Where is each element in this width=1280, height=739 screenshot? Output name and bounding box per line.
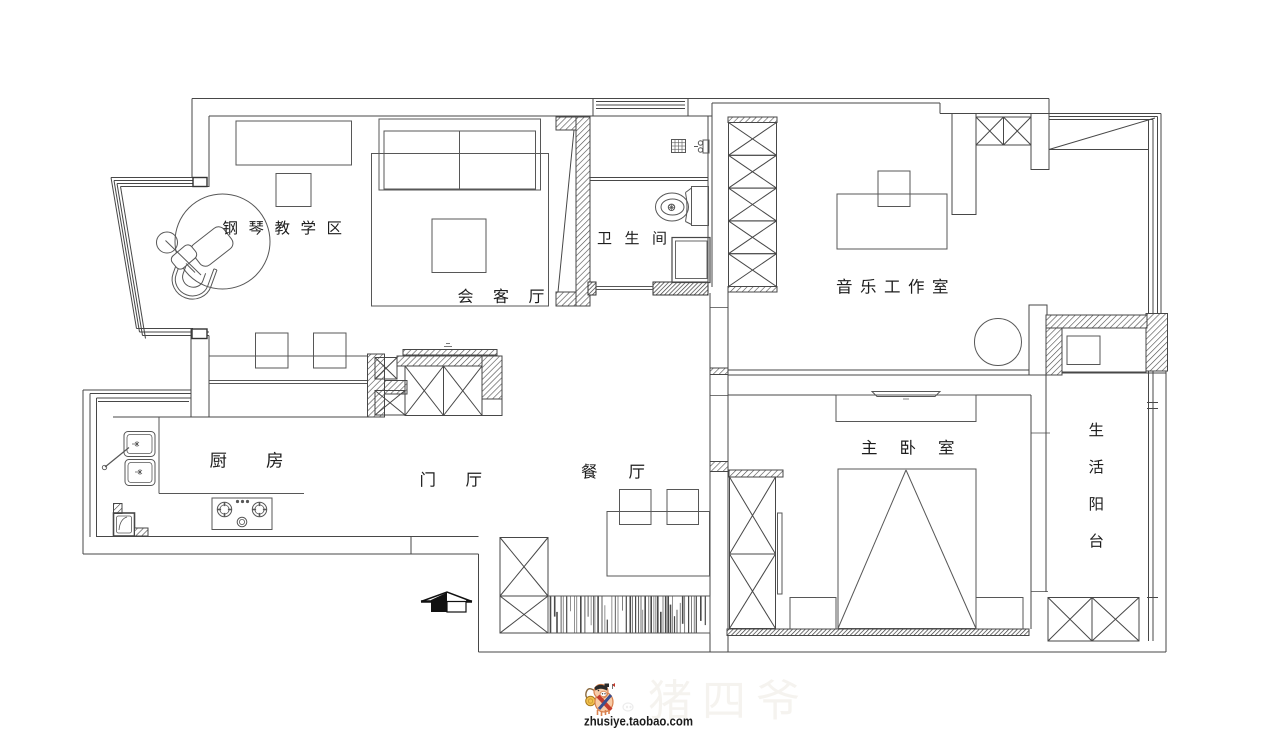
svg-text:zhusiye.taobao.com: zhusiye.taobao.com bbox=[584, 715, 693, 729]
